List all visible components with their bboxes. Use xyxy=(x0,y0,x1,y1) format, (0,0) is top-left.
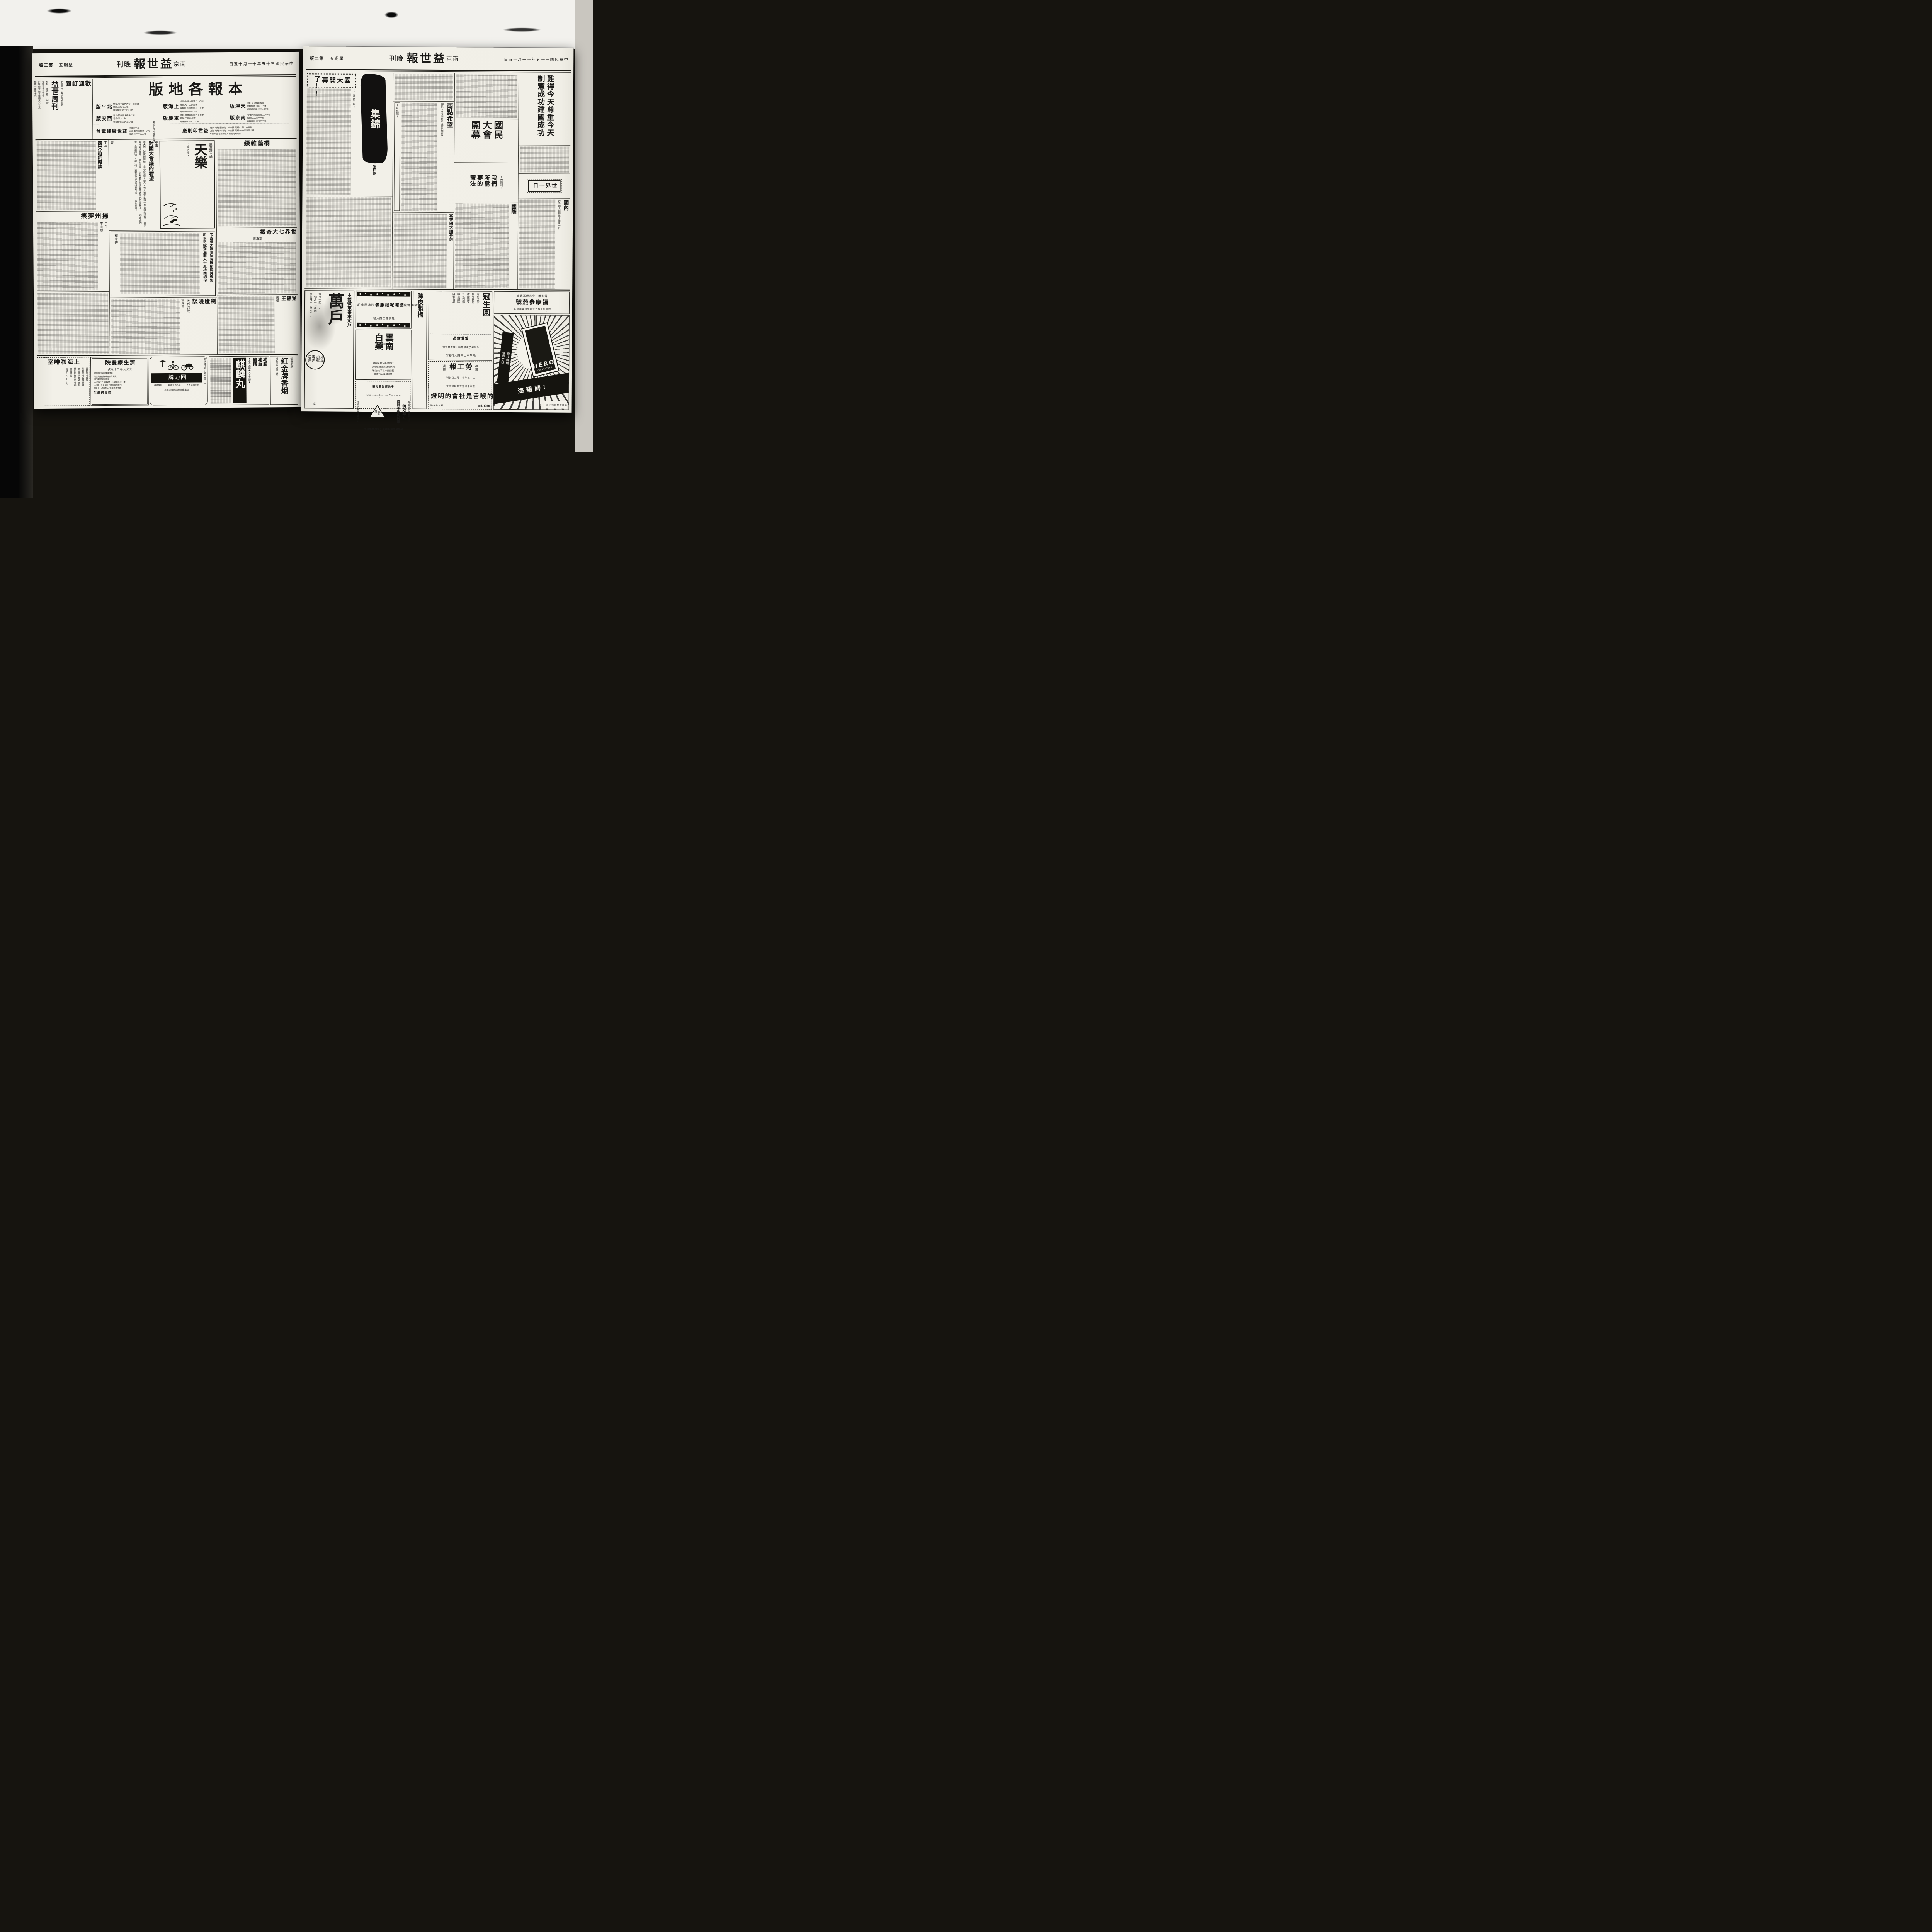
body-text-texture xyxy=(37,293,109,354)
laogong-slogan: 是社會的明燈 xyxy=(430,393,472,401)
wanhu-subscriber-promo: 本報徵求基本定戶 萬戶 每月—四千元 三個月—一萬元 六個月—一萬八千元 外埠加… xyxy=(304,290,354,409)
edition-name: 南京版 xyxy=(229,115,245,122)
houzao-main: 特效藥丸 xyxy=(401,404,406,419)
jijin-logo: 集錦 xyxy=(361,73,388,163)
printing-name: 益世印刷廠 xyxy=(182,128,208,134)
tianle-title: 天樂 xyxy=(191,143,208,226)
printing-house: 益世印刷廠 南京 地址:國府路二八一號 電話:二四二一五號 上海 地址:四川路二… xyxy=(182,126,254,136)
xianfa-headline-block: 我們所需要的憲法 (大剛報) xyxy=(454,162,518,202)
title-prefix: 南京 xyxy=(173,61,186,69)
shijie-box-wrap: 世界一日 xyxy=(518,173,570,198)
jisheng-sanatorium-ad: 濟生療養院 大火瓦巷二十九號 本院協助政府肅清煙毒 為救濟貧民解除癮患苦起見 特… xyxy=(90,357,148,406)
newspaper-title: 晚刊 益世報 南京 xyxy=(388,52,459,67)
poem-text-texture xyxy=(120,233,200,294)
weekly-tagline: 創刊三十五年的綜合性之 xyxy=(60,81,63,138)
guonei-section: 昨為國大延期後之最後一日 國內 xyxy=(518,198,570,290)
kaimu-row: 國大開幕了!! (上海大公報) 集錦 第四期 xyxy=(305,72,393,196)
filler-text xyxy=(455,73,519,119)
newspaper-title: 晚刊 益世報 南京 xyxy=(115,57,186,73)
edition-address: 地址:天津羅斯福路 xyxy=(247,102,269,105)
husun-article: 義鄰 猢猻王 xyxy=(217,294,298,354)
houzao-clinic-address: 地點國府路香舖營15號趙峯樵診所 xyxy=(363,427,403,430)
yishi-weekly-box: 歡迎訂閱 創刊三十五年的綜合性之 益世周刊 地址:國府路二八一號 每期零售三百元… xyxy=(35,79,93,139)
editions-banner: 歡迎訂閱 創刊三十五年的綜合性之 益世周刊 地址:國府路二八一號 每期零售三百元… xyxy=(35,78,297,140)
title-prefix: 南京 xyxy=(446,56,459,63)
yunnan-sub-brand: 金碧 xyxy=(381,342,386,346)
yangzhou-title: 揚州夢痕 xyxy=(80,213,108,221)
qilin-title: 麒麟丸 xyxy=(233,358,246,403)
band-editorial: 難得今天尊重今天 制憲成功建國成功 世界一日 昨為國大延期後之最後一日 國內 xyxy=(517,73,571,290)
supplement-issue: 第四期 xyxy=(372,165,376,175)
liangsong-author: 丁三 xyxy=(104,141,108,210)
edition-telegraph: 電報掛號:八〇二〇號 xyxy=(180,120,204,124)
title-main: 益世報 xyxy=(131,57,171,73)
kaimu-text-texture xyxy=(306,88,351,195)
guonei-lead: 昨為國大延期後之最後一日 xyxy=(556,199,561,288)
huili-product: 人力車內外胎 xyxy=(187,384,199,387)
qilin-pills-ad: 補腦補血補精 ★冬令進補★人人宜服★ 麒麟丸 xyxy=(209,356,269,405)
body-text-texture xyxy=(456,74,517,118)
body-text-texture xyxy=(520,146,570,173)
houzao-triangle: 止咳第一 xyxy=(369,405,386,418)
houzao-triangle-text: 止咳第一 xyxy=(374,410,381,417)
edition-phone: 經理部電話:二二九四號 xyxy=(247,108,269,112)
quote-box: (新民報) xyxy=(394,102,400,211)
nirong-item: 西裝 馬褲呢 xyxy=(357,303,375,308)
jisheng-address: 大火瓦巷二十九號 xyxy=(107,368,132,371)
editorial-headline xyxy=(534,75,535,138)
body-text-texture xyxy=(455,203,509,288)
edition-beiping: 北平版 地址:北平宣內大街一五四號電話:三〇七三號電報掛號:六二四〇號 xyxy=(95,100,160,114)
yunnan-line: 京總經銷處震亞大藥房 xyxy=(372,365,395,369)
yunnan-baiyao-ad: 雲南白藥 金碧 昆明金碧大藥房發行 京總經銷處震亞大藥房 地址:太平路一四四號 … xyxy=(355,330,412,380)
scan-top-edge xyxy=(0,0,593,49)
body-text-texture xyxy=(218,296,275,353)
right-column-band: 桐蔭雜綴 世界七大奇觀 夏洛譯 義鄰 猢猻王 xyxy=(216,139,298,354)
page-number-label: 第三版 xyxy=(38,63,53,69)
weekly-airmail: 航寄一萬伍千元 xyxy=(33,81,36,138)
tianle-supplement-box: 盧冀野主編 天樂 (第四期) xyxy=(160,140,216,229)
huili-logo-band: 回力牌 xyxy=(151,373,202,383)
hero-maker-chip: 樂羣煙草公司出品 xyxy=(544,401,567,408)
cyclists-illustration xyxy=(151,358,202,372)
body-text-texture xyxy=(395,74,453,100)
edition-address: 地址:西安南大街十二號 xyxy=(113,114,135,117)
edition-editorial-address: 編輯部:四川中路二一五號 xyxy=(180,107,204,111)
edition-editorial-phone: 電話:一三五四六號 xyxy=(180,110,204,114)
poem-title-2: 和玉奇賦別灌縣人士原均四絕句 xyxy=(202,233,207,294)
yangzhou-author: 二丫 xyxy=(104,222,108,290)
hongjin-maker: 福新烟草公司出品 xyxy=(275,357,278,403)
huili-product: 各式球鞋 xyxy=(154,384,163,387)
hongjin-title: 紅金牌香烟 xyxy=(279,357,289,403)
radio-note: 如欲訂閱本報各地版 xyxy=(152,121,155,142)
coffee-line: 特別新鮮牛奶咖啡 xyxy=(73,367,76,386)
liangdian-source: (新民報) xyxy=(396,104,399,118)
qilin-text-texture xyxy=(210,358,231,403)
hero-pack-art: HERO CIGARETTES xyxy=(521,322,560,378)
edition-address: 地址:上海山東路二九〇號 xyxy=(180,100,204,104)
yunnan-line: 本市各大藥房均售 xyxy=(372,372,395,376)
weekday-label: 星期五 xyxy=(58,63,73,68)
edition-name: 上海版 xyxy=(162,104,179,111)
liangdian-article: 兩點希望 國民大會今天終於在南京開幕了。 (新民報) xyxy=(393,101,454,212)
xiaoyan-body: 國大因共產黨的阻撓,奉令延遲了三天,吾人對於此種神聖會議的揭幕,表示非常歡忻鼓舞… xyxy=(115,141,147,229)
filler-text xyxy=(393,73,454,101)
huili-product: 腳踏車內外胎 xyxy=(168,384,180,387)
tianle-issue: (第四期) xyxy=(186,143,190,226)
guoji-label: 國際 xyxy=(510,204,517,288)
left-masthead: 第三版 星期五 晚刊 益世報 南京 中華民國三十五年十一月十五日 xyxy=(35,54,296,75)
laogong-invite: 歡迎訂閱 xyxy=(478,404,490,408)
houzao-right-slogan: 傷風咳嗽良藥咳利舒 xyxy=(407,401,410,422)
edition-telegraph: 電報掛號:六二四〇號 xyxy=(113,109,139,112)
xiezai-title: 寫在國大開幕前 xyxy=(447,214,452,288)
liangdian-lead: 國民大會今天終於在南京開幕了。 xyxy=(438,103,444,211)
nirong-title: 國際呢絨服裝 xyxy=(374,303,403,308)
xiezai-article: 寫在國大開幕前 xyxy=(393,212,454,289)
dahui-headline-block: 國民大會開幕 xyxy=(454,119,518,163)
fukang-address: 地址:中正路七十六號復興商場口 xyxy=(513,308,550,311)
page-number-label: 第二版 xyxy=(309,56,323,61)
kaimu-body xyxy=(304,196,393,289)
left-column-band: 兩宋詩詞雜談 丁三 揚州夢痕 平山堂 二丫 xyxy=(36,140,110,355)
laogong-founded: 三十五年十一月二日創刊 xyxy=(446,376,474,379)
houzao-medicine-ad: 中央衛生署化驗 第一八一五.一八一七.一八一八號 傷風咳嗽良藥咳利舒 特效藥丸 … xyxy=(355,381,411,409)
edition-telegraph: 電報掛號:〇〇三七號 xyxy=(247,105,269,108)
newspaper-scan: { "paper": { "prefix": "南京", "main": "益世… xyxy=(0,0,593,452)
coffee-line: 首都咖啡專家 xyxy=(85,367,88,381)
radio-name: 益世廣播電台 xyxy=(95,129,127,135)
gsy-note: 牛油果子蛋糕用料上等滋養豐富 xyxy=(442,346,479,349)
gsy-product: 罐頭食品 xyxy=(452,293,456,333)
body-text-texture xyxy=(306,197,391,287)
star-border-bottom xyxy=(357,323,410,328)
jianlu-title: 劍廬漫談 xyxy=(191,299,216,306)
laogong-format: 四開 xyxy=(474,365,478,371)
dahui-headline: 國民大會開幕 xyxy=(469,120,503,144)
weekly-address: 地址:國府路二八一號 xyxy=(45,81,48,138)
right-page: 第二版 星期五 晚刊 益世報 南京 中華民國三十五年十一月十五日 國大開幕了!!… xyxy=(301,46,574,413)
xiaoyan-column: 小言 對國大會議的奢望 國大因共產黨的阻撓,奉令延遲了三天,吾人對於此種神聖會議… xyxy=(110,141,159,229)
xiaoyan-kicker: 小言 xyxy=(155,141,159,229)
filler-text xyxy=(519,145,571,174)
kaimu-headline: 國大開幕了!! xyxy=(313,75,350,84)
jisheng-line: 限期十一月底為止 額滿照章收費 xyxy=(94,387,146,390)
date-line: 中華民國三十五年十一月十五日 xyxy=(228,61,293,67)
husun-title: 猢猻王 xyxy=(281,296,296,302)
qilin-banner: ★冬令進補★人人宜服★ xyxy=(248,358,251,403)
weekly-price: 每期零售三百元 xyxy=(41,81,44,138)
jianlu-subtitle: 宋代兵制 xyxy=(186,299,190,354)
gsy-product: 糖果餅乾 xyxy=(471,293,475,333)
body-text-texture xyxy=(519,199,555,289)
wanhu-seal-text: 外埠加郵專差送達 xyxy=(306,355,323,364)
fukang-ad: 首都唯一參燕銀耳專家 福康參燕號 地址:中正路七十六號復興商場口 xyxy=(493,291,570,314)
shanghai-coffee-ad: 上海咖啡室 首都咖啡專家 蒸氣咖啡香味撲鼻 高尚西茶豐式西點 特別新鮮牛奶咖啡 … xyxy=(37,357,90,406)
weekly-postage: 訂閱全卷平寄連郵資八千元 xyxy=(37,81,41,138)
star-border-top xyxy=(357,292,410,297)
coffee-phone: 電話23176 xyxy=(65,367,68,386)
xiaoyan-title: 對國大會議的奢望 xyxy=(147,141,154,229)
laogong-address: 社址:朱雀路 xyxy=(430,404,443,407)
hongjin-kicker: 榮譽出品 xyxy=(290,357,293,403)
date-line: 中華民國三十五年十一月十五日 xyxy=(503,57,568,63)
wanhu-price-quarter: 三個月—一萬元 xyxy=(314,293,317,317)
gsy-product: 各式西點 xyxy=(462,293,465,333)
weekly-title: 益世周刊 xyxy=(50,81,59,138)
band-dahui: 國民大會開幕 我們所需要的憲法 (大剛報) 國際 xyxy=(453,73,519,289)
hongjin-cigarette-ad: 榮譽出品 紅金牌香烟 福新烟草公司出品 xyxy=(270,356,298,405)
left-ads-row: 上海咖啡室 首都咖啡專家 蒸氣咖啡香味撲鼻 高尚西茶豐式西點 特別新鮮牛奶咖啡 … xyxy=(37,354,298,406)
hero-slogan-thick: 煙枝特粗 xyxy=(505,352,510,365)
edition-address: 地址:重慶青年路六十七號 xyxy=(180,114,204,117)
wanhu-price-month: 每月—四千元 xyxy=(318,293,321,317)
gsy-product: 甜鹹麵包 xyxy=(466,293,470,333)
jianlu-article: 雲巖青 宋代兵制 劍廬漫談 xyxy=(110,297,217,355)
edition-phone: 電話:三六二號 xyxy=(113,117,135,121)
yunnan-address: 地址:太平路一四四號 xyxy=(372,369,395,373)
gsy-address: 地址:中山東路大行宮口 xyxy=(445,354,476,357)
edition-address: 地址:南京國府路二八一號 xyxy=(247,113,270,117)
huili-brand: 回力牌 xyxy=(167,374,186,381)
edition-address: 地址:北平宣內大街一五四號 xyxy=(113,102,139,106)
radio-station: 益世廣播電台 呼號XPBK 地址:南京鐵管巷七八號 電話:二三三八六號 如欲訂閱… xyxy=(95,121,178,142)
body-text-texture xyxy=(37,222,98,291)
edition-name: 北平版 xyxy=(95,104,112,111)
edition-nanjing: 南京版 地址:南京國府路二八一號電話:二二八一一號電報掛號:〇五〇五號 xyxy=(229,113,294,123)
band-liangdian: 兩點希望 國民大會今天終於在南京開幕了。 (新民報) 寫在國大開幕前 xyxy=(392,73,455,289)
qiguan-article: 世界七大奇觀 夏洛譯 xyxy=(217,227,298,295)
title-suffix: 晚刊 xyxy=(115,61,130,70)
shijie-title: 世界一日 xyxy=(532,182,557,189)
qiguan-translator: 夏洛譯 xyxy=(252,237,262,240)
gsy-product: 壽喜蛋糕 xyxy=(457,293,460,333)
jianlu-author: 雲巖青 xyxy=(181,299,185,354)
body-text-texture xyxy=(111,299,180,354)
chenpi-title: 陳皮製梅 xyxy=(416,293,424,318)
yangzhou-article: 揚州夢痕 平山堂 二丫 xyxy=(36,211,110,292)
gsy-laogong-column: 冠生園 南京分店 糖果餅乾 甜鹹麵包 各式西點 壽喜蛋糕 罐頭食品 營養食品 牛… xyxy=(428,291,492,410)
editorial-headline-2: 制憲成功建國成功 xyxy=(536,75,546,138)
coffee-line: 蒸氣咖啡香味撲鼻 xyxy=(81,367,84,386)
body-text-texture xyxy=(394,213,447,288)
bird-flower-art xyxy=(162,202,182,227)
hero-maker: 樂羣煙草公司出品 xyxy=(545,404,566,407)
chenpi-plum-ad: 陳皮製梅 xyxy=(412,291,427,409)
editions-headline: 本報各地版 xyxy=(145,79,244,99)
husun-author: 義鄰 xyxy=(276,296,280,353)
center-column-band: 小言 對國大會議的奢望 國大因共產黨的阻撓,奉令延遲了三天,吾人對於此種神聖會議… xyxy=(109,139,218,355)
wanhu-price-half-year: 六個月—一萬八千元 xyxy=(309,293,313,317)
liangsong-article: 兩宋詩詞雜談 丁三 xyxy=(36,140,109,211)
jijin-logo-text: 集錦 xyxy=(368,108,381,129)
liangsong-title: 兩宋詩詞雜談 xyxy=(97,141,103,210)
kaimu-headline-box: 國大開幕了!! xyxy=(307,73,356,88)
subscribe-invite: 歡迎訂閱 xyxy=(65,80,91,88)
laogong-cycle: 週刊 xyxy=(442,364,446,371)
xiaoyan-author: 雲 xyxy=(110,141,114,229)
services-row: 益世廣播電台 呼號XPBK 地址:南京鐵管巷七八號 電話:二三三八六號 如欲訂閱… xyxy=(93,123,296,139)
left-page-meta: 第三版 星期五 xyxy=(38,63,72,68)
liangdian-title: 兩點希望 xyxy=(445,103,453,211)
weekly-details: 地址:國府路二八一號 每期零售三百元 訂閱全卷平寄連郵資八千元 航寄一萬伍千元 xyxy=(33,81,48,138)
tianle-editor: 盧冀野主編 xyxy=(209,143,213,226)
fukang-kicker: 首都唯一參燕銀耳專家 xyxy=(516,294,547,298)
houzao-cert: 中央衛生署化驗 xyxy=(372,384,394,388)
fukang-title: 福康參燕號 xyxy=(515,299,548,307)
gsy-branch: 南京分店 xyxy=(476,293,480,333)
gsy-title: 冠生園 xyxy=(481,293,491,333)
houzao-sub: 百日咳化痰猴棗 xyxy=(396,400,400,424)
houzao-cert-number: 第一八一五.一八一七.一八一八號 xyxy=(366,394,400,397)
jisheng-director: 院長何濟生 xyxy=(94,391,111,395)
huili-warrior-ad: 回力牌 各式球鞋 腳踏車內外胎 人力車內外胎 上海正泰信記橡膠廠出品 南京發行所… xyxy=(150,356,208,405)
houzao-left-slogan: 防癆治癆補血鎮咳丸 xyxy=(356,401,359,422)
nirong-address: 建康路二四六號 xyxy=(373,316,395,320)
band-kaimu: 國大開幕了!! (上海大公報) 集錦 第四期 xyxy=(304,72,393,289)
body-text-texture xyxy=(218,241,296,294)
edition-list: 北平版 地址:北平宣內大街一五四號電話:三〇七三號電報掛號:六二四〇號 上海版 … xyxy=(93,99,296,124)
poem-author: 石志伊 xyxy=(113,234,118,294)
liangdian-texture xyxy=(401,103,437,211)
xianfa-source: (大剛報) xyxy=(500,175,503,190)
coffee-line: 應有盡有 xyxy=(69,367,72,377)
hero-cigarette-ad: 煙枝特粗 煙中英雄 HERO CIGARETTES 海羅牌! 樂羣煙草公司出品 xyxy=(493,315,570,410)
tongyin-title: 桐蔭雜綴 xyxy=(243,140,270,148)
edition-name: 天津版 xyxy=(229,104,245,110)
mid-ads-column: 西裝 馬褲呢 國際呢絨服裝 時裝 海勃龍 建康路二四六號 雲南白藥 金碧 昆明金… xyxy=(355,291,412,409)
misc-text-block xyxy=(36,291,110,355)
editions-headline-wrap: 本報各地版 xyxy=(93,78,296,100)
printing-note: 印刷事宜等請駕臨本社或電話通知 xyxy=(210,133,254,136)
guonei-label: 國內 xyxy=(562,200,569,289)
scan-left-edge xyxy=(0,46,33,498)
weekday-label: 星期五 xyxy=(329,56,344,61)
title-suffix: 晚刊 xyxy=(388,55,403,63)
editorial-headline-block: 難得今天尊重今天 制憲成功建國成功 xyxy=(519,73,571,145)
guanshengyuan-ad: 冠生園 南京分店 糖果餅乾 甜鹹麵包 各式西點 壽喜蛋糕 罐頭食品 營養食品 牛… xyxy=(428,291,492,361)
body-text-texture xyxy=(218,148,296,226)
laogong-publisher: 發行:中國勞工問題研究會 xyxy=(446,384,474,388)
edition-shanghai: 上海版 地址:上海山東路二九〇號電話:九一五六九號編輯部:四川中路二一五號電話:… xyxy=(162,100,227,114)
wanhu-kicker: 本報徵求基本定戶 xyxy=(346,293,352,406)
gsy-featured: 營養食品 xyxy=(452,336,468,340)
guoji-section: 國際 xyxy=(454,202,518,289)
title-main: 益世報 xyxy=(404,52,444,67)
radio-phone: 電話:二三三八六號 xyxy=(129,133,150,136)
qiguan-title: 世界七大奇觀 xyxy=(259,229,296,236)
scan-right-edge xyxy=(575,0,593,452)
right-ads-right-column: 首都唯一參燕銀耳專家 福康參燕號 地址:中正路七十六號復興商場口 煙枝特粗 煙中… xyxy=(493,291,570,410)
jisheng-title: 濟生療養院 xyxy=(104,360,135,367)
yangzhou-subtitle: 平山堂 xyxy=(99,222,103,290)
left-page: 第三版 星期五 晚刊 益世報 南京 中華民國三十五年十一月十五日 歡迎訂閱 創刊… xyxy=(32,52,301,409)
huili-maker: 上海正泰信記橡膠廠出品 xyxy=(151,388,202,392)
supplement-header-row: 小言 對國大會議的奢望 國大因共產黨的阻撓,奉令延遲了三天,吾人對於此種神聖會議… xyxy=(109,139,217,230)
laogong-title: 勞工報 xyxy=(448,363,472,372)
poem-title-1: 玉奇將之淮陰法院履新賦詩復別 xyxy=(209,233,213,294)
hero-brand-text: 海羅牌! xyxy=(517,381,549,395)
kaimu-source: (上海大公報) xyxy=(352,89,356,195)
nirong-tailor-ad: 西裝 馬褲呢 國際呢絨服裝 時裝 海勃龍 建康路二四六號 xyxy=(355,291,412,329)
xianfa-headline: 我們所需要的憲法 xyxy=(469,175,497,190)
right-page-meta: 第二版 星期五 xyxy=(309,56,343,62)
hero-slogan-band: 煙枝特粗 煙中英雄 xyxy=(497,332,514,384)
radio-address: 地址:南京鐵管巷七八號 xyxy=(129,130,150,133)
right-ads-row: 本報徵求基本定戶 萬戶 每月—四千元 三個月—一萬元 六個月—一萬八千元 外埠加… xyxy=(304,288,570,410)
tongyin-article: 桐蔭雜綴 xyxy=(216,139,297,228)
editorial-headline-1: 難得今天尊重今天 xyxy=(545,75,555,138)
coffee-line: 高尚西茶豐式西點 xyxy=(77,367,80,386)
coffee-title: 上海咖啡室 xyxy=(47,359,80,366)
huili-agent: 南京發行所:昇州路二三一 xyxy=(203,358,206,403)
wanhu-seal: 外埠加郵專差送達 xyxy=(305,350,325,369)
poem-block: 玉奇將之淮陰法院履新賦詩復別 和玉奇賦別灌縣人士原均四絕句 石志伊 xyxy=(109,230,217,298)
qilin-slogans: 補腦補血補精 xyxy=(252,357,267,368)
wanhu-title: 萬戶 xyxy=(325,293,345,406)
edition-tianjin: 天津版 地址:天津羅斯福路電報掛號:〇〇三七號經理部電話:二二九四號 xyxy=(229,100,294,113)
body-text-texture xyxy=(37,141,96,210)
wanhu-mark: Ⓐ xyxy=(313,402,316,406)
yunnan-line: 昆明金碧大藥房發行 xyxy=(372,362,395,366)
laogongbao-ad: 四開 勞工報 週刊 三十五年十一月二日創刊 發行:中國勞工問題研究會 是社會的明… xyxy=(428,361,492,410)
right-masthead: 第二版 星期五 晚刊 益世報 南京 中華民國三十五年十一月十五日 xyxy=(306,49,571,70)
